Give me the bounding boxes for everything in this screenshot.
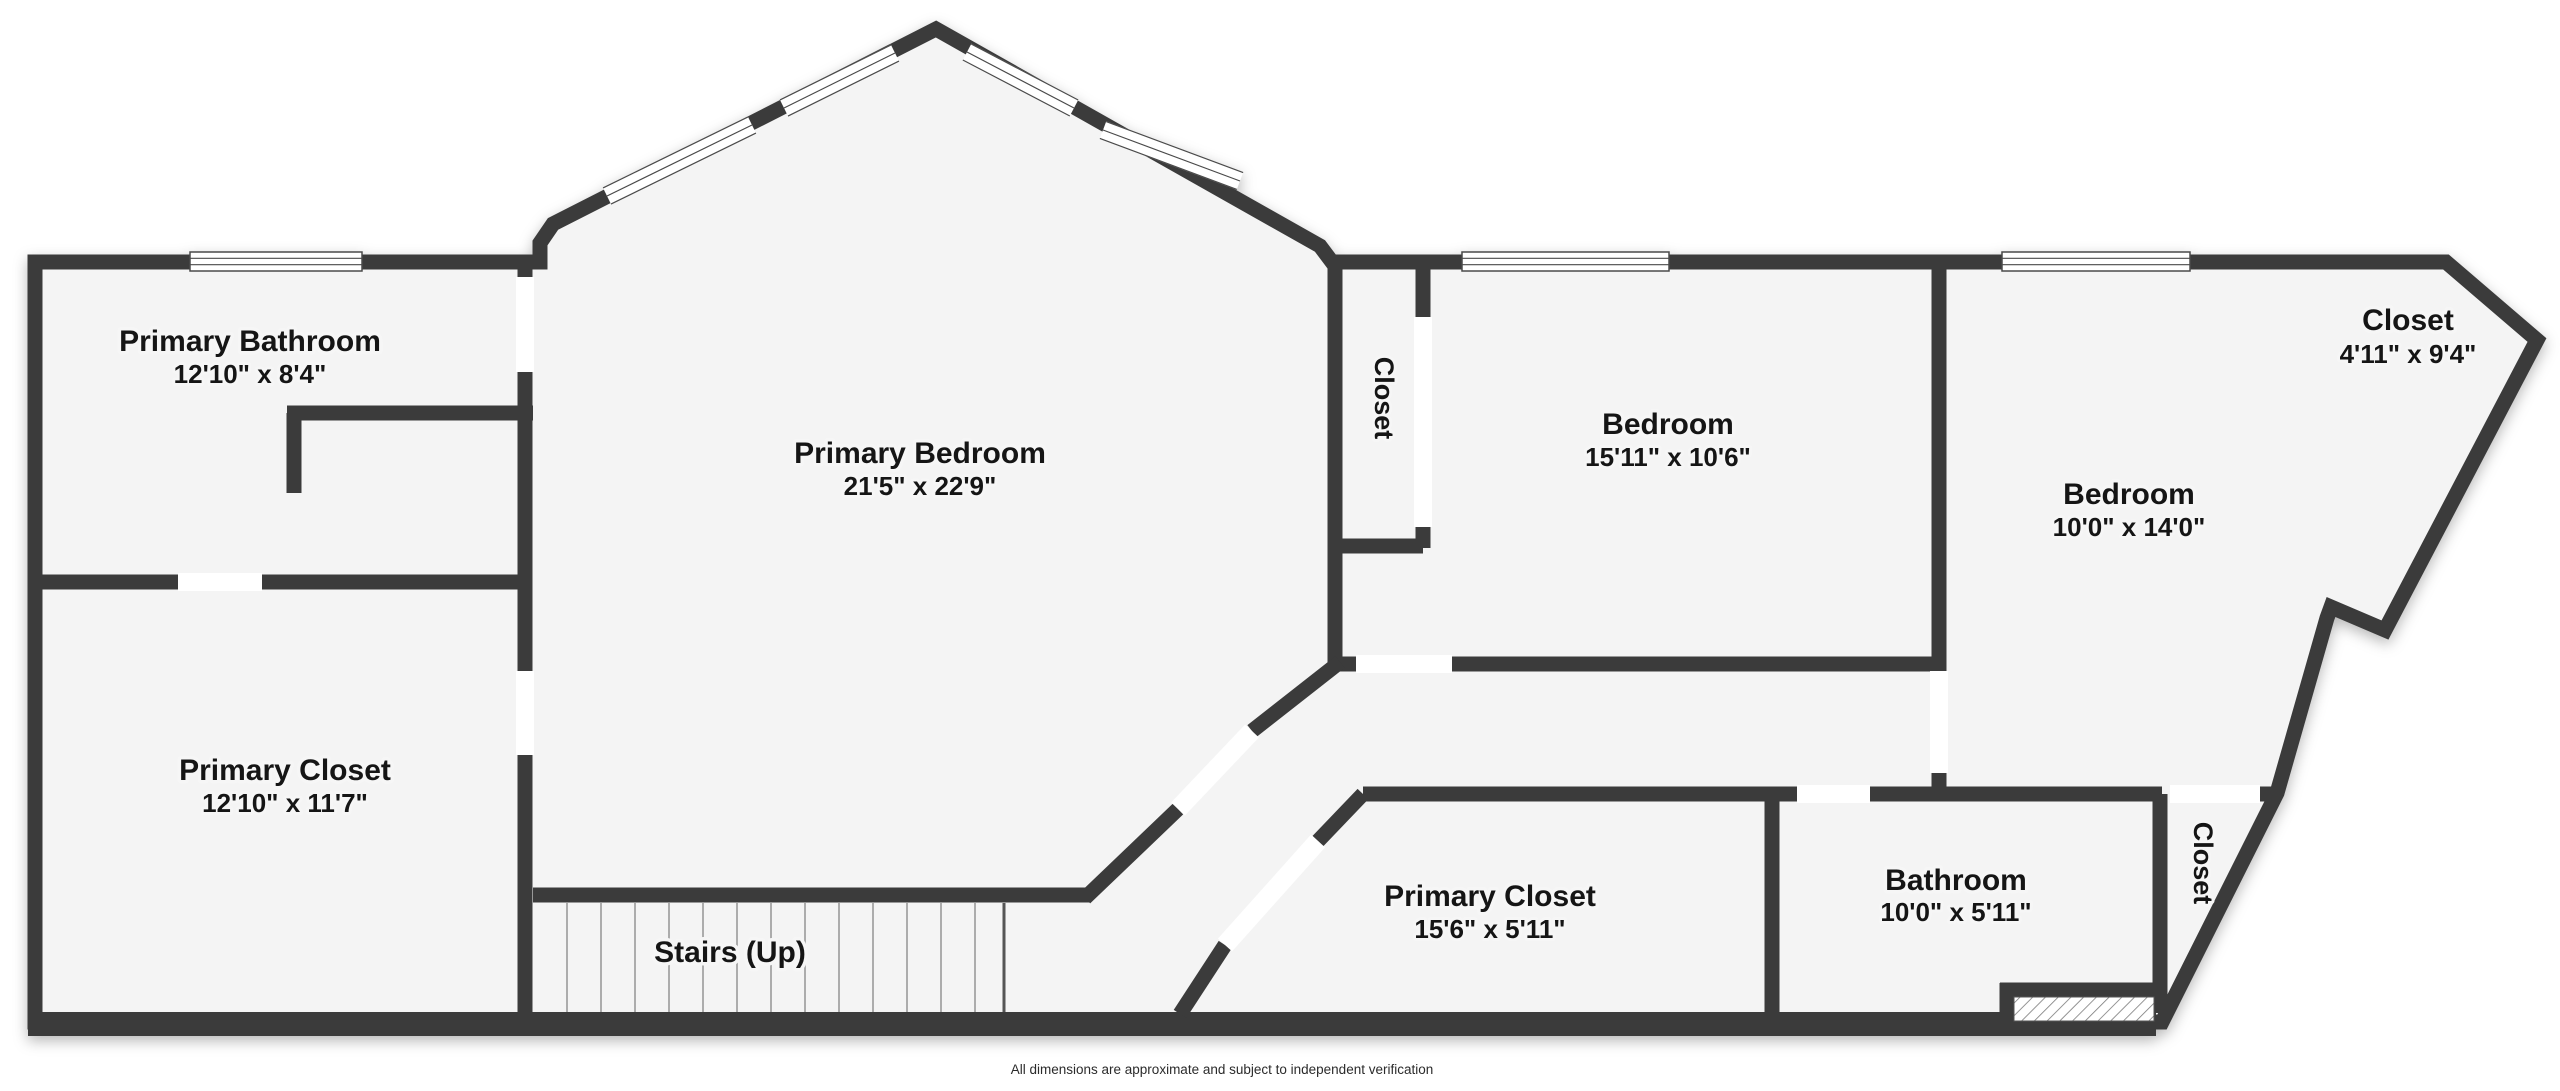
door-opening [1414, 317, 1432, 527]
room-dimensions: 10'0" x 14'0" [2053, 512, 2206, 542]
door-opening [1356, 655, 1452, 673]
bottom-wall [28, 1012, 2156, 1036]
room-name: Bathroom [1885, 864, 2027, 897]
room-dimensions: 15'6" x 5'11" [1414, 914, 1565, 944]
door-opening [178, 573, 262, 591]
room-label-bathroom: Bathroom10'0" x 5'11" [1880, 864, 2031, 927]
room-name: Primary Closet [179, 754, 391, 787]
door-opening [2170, 785, 2260, 803]
door-opening [1797, 785, 1870, 803]
disclaimer-text: All dimensions are approximate and subje… [0, 1062, 2444, 1077]
room-name: Primary Closet [1384, 880, 1596, 913]
room-dimensions: 4'11" x 9'4" [2340, 339, 2477, 369]
room-name: Closet [2362, 304, 2454, 337]
room-label-stairs: Stairs (Up) [654, 936, 806, 969]
room-dimensions: 21'5" x 22'9" [844, 471, 997, 501]
room-dimensions: 10'0" x 5'11" [1880, 897, 2031, 927]
room-dimensions: 12'10" x 11'7" [202, 788, 368, 818]
room-name: Primary Bedroom [794, 437, 1046, 470]
window-frame [2002, 252, 2190, 271]
room-name: Bedroom [1602, 408, 1734, 441]
floorplan-canvas: Primary Bathroom12'10" x 8'4"Primary Bed… [0, 0, 2560, 1091]
room-name: Closet [2188, 822, 2218, 905]
window [1462, 252, 1669, 271]
door-opening [516, 277, 534, 372]
room-label-closet-hall: Closet [1369, 357, 1399, 440]
window-frame [1462, 252, 1669, 271]
room-name: Closet [1369, 357, 1399, 440]
room-name: Stairs (Up) [654, 936, 806, 969]
door-opening [1930, 671, 1948, 773]
window-frame [190, 252, 362, 271]
room-label-bedroom-2: Bedroom10'0" x 14'0" [2053, 478, 2206, 542]
room-label-closet-se: Closet [2188, 822, 2218, 905]
room-name: Bedroom [2063, 478, 2195, 511]
room-label-primary-closet-2: Primary Closet15'6" x 5'11" [1384, 880, 1596, 944]
room-label-bedroom-1: Bedroom15'11" x 10'6" [1585, 408, 1751, 472]
door-opening [516, 671, 534, 755]
window [190, 252, 362, 271]
room-name: Primary Bathroom [119, 325, 381, 358]
room-dimensions: 12'10" x 8'4" [174, 359, 327, 389]
window [2002, 252, 2190, 271]
hatched-void-area [2014, 997, 2154, 1021]
room-dimensions: 15'11" x 10'6" [1585, 442, 1751, 472]
floorplan-page: Primary Bathroom12'10" x 8'4"Primary Bed… [0, 0, 2560, 1091]
room-label-primary-closet: Primary Closet12'10" x 11'7" [179, 754, 391, 818]
